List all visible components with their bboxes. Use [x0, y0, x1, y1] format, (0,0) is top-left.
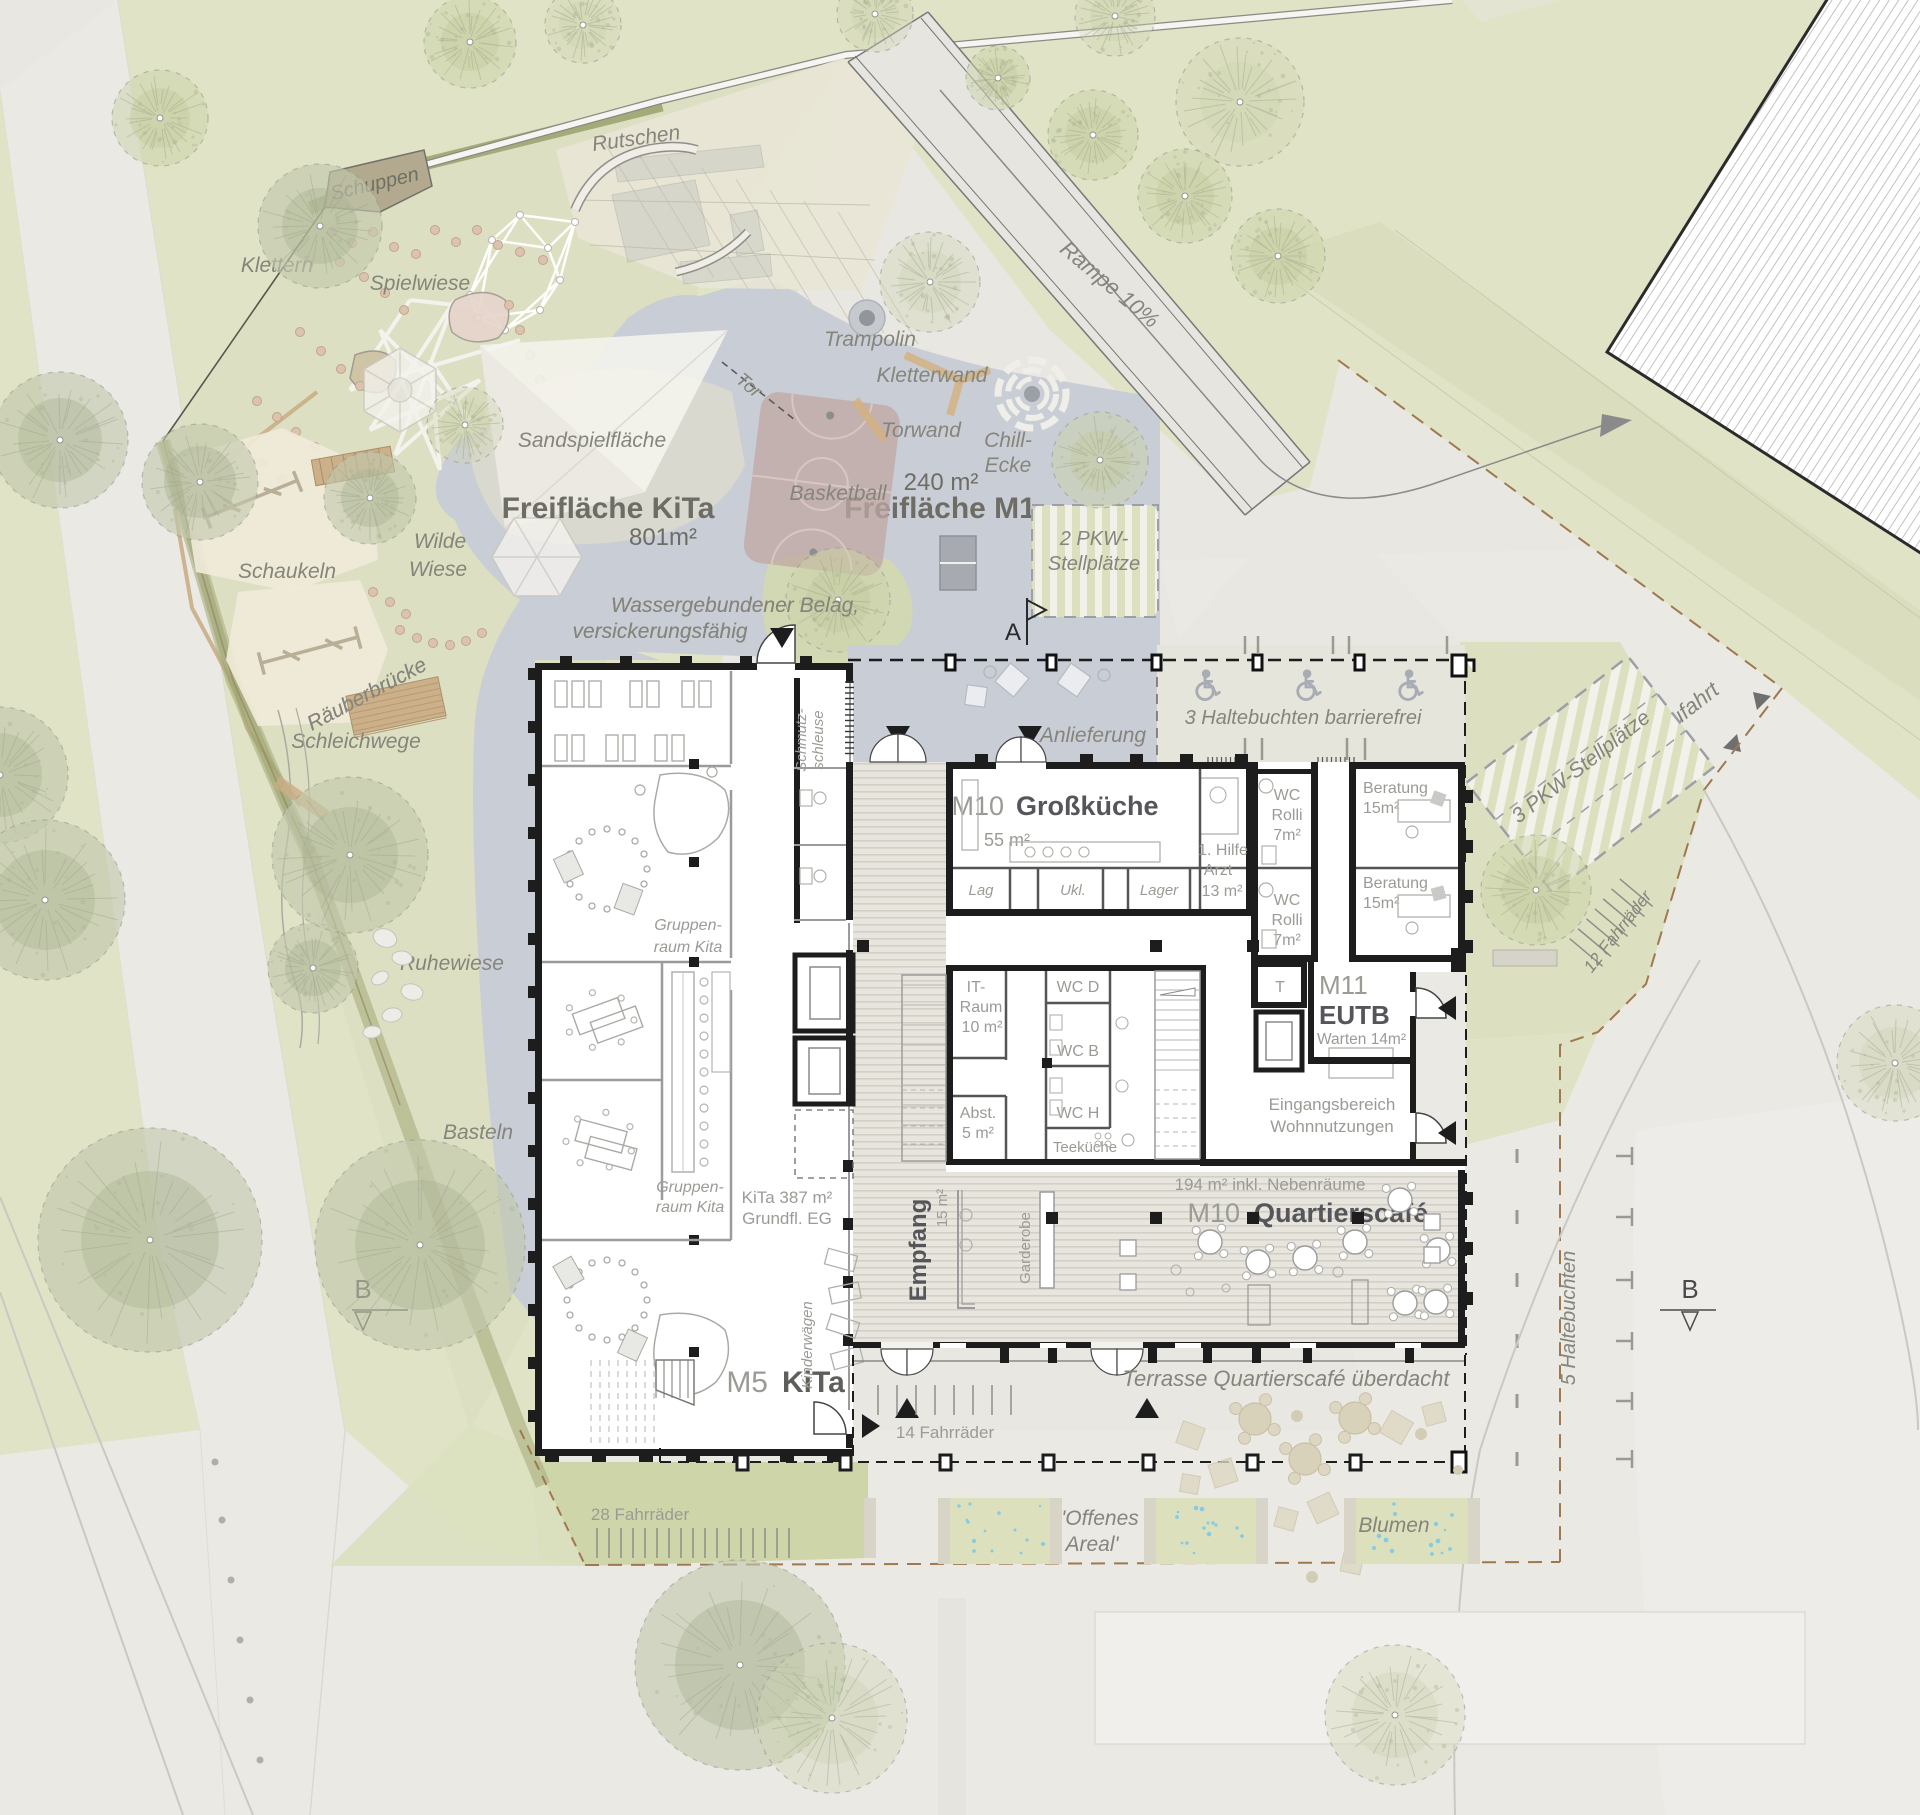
svg-text:Basketball: Basketball	[790, 482, 888, 505]
svg-text:55 m²: 55 m²	[984, 830, 1030, 850]
svg-text:15m²: 15m²	[1363, 895, 1400, 912]
svg-text:A: A	[1005, 619, 1021, 646]
svg-text:13 m²: 13 m²	[1202, 883, 1244, 900]
svg-text:15 m²: 15 m²	[934, 1189, 951, 1227]
svg-text:Spielwiese: Spielwiese	[370, 272, 470, 295]
svg-text:B: B	[1681, 1274, 1698, 1304]
svg-text:Ecke: Ecke	[985, 454, 1032, 477]
svg-text:7m²: 7m²	[1273, 932, 1301, 949]
svg-text:Eingangsbereich: Eingangsbereich	[1269, 1095, 1396, 1114]
svg-text:Garderobe: Garderobe	[1017, 1212, 1034, 1284]
svg-text:Blumen: Blumen	[1358, 1514, 1429, 1537]
svg-text:28 Fahrräder: 28 Fahrräder	[591, 1505, 690, 1524]
svg-text:Gruppen-: Gruppen-	[654, 917, 722, 934]
svg-text:Beratung: Beratung	[1363, 875, 1428, 892]
svg-text:Sandspielfläche: Sandspielfläche	[518, 429, 666, 452]
svg-text:Schaukeln: Schaukeln	[238, 560, 336, 583]
svg-text:Warten 14m²: Warten 14m²	[1317, 1031, 1406, 1048]
svg-text:Abst.: Abst.	[960, 1105, 996, 1122]
svg-text:T: T	[1275, 979, 1285, 996]
svg-text:Rolli: Rolli	[1271, 912, 1302, 929]
svg-text:2 PKW-: 2 PKW-	[1059, 528, 1129, 550]
svg-text:EUTB: EUTB	[1319, 1000, 1390, 1030]
svg-text:raum Kita: raum Kita	[656, 1199, 725, 1216]
svg-text:Kletterwand: Kletterwand	[877, 364, 989, 387]
svg-text:Grundfl. EG: Grundfl. EG	[742, 1209, 832, 1228]
svg-text:M5: M5	[726, 1366, 768, 1399]
svg-text:194 m² inkl. Nebenräume: 194 m² inkl. Nebenräume	[1175, 1175, 1366, 1194]
svg-text:schleuse: schleuse	[810, 710, 827, 769]
svg-text:Basteln: Basteln	[443, 1121, 513, 1144]
svg-text:Wohnnutzungen: Wohnnutzungen	[1270, 1117, 1394, 1136]
svg-text:Schleichwege: Schleichwege	[291, 730, 421, 753]
svg-text:5 m²: 5 m²	[962, 1125, 995, 1142]
svg-text:Schmutz-: Schmutz-	[793, 708, 810, 771]
svg-text:Torwand: Torwand	[881, 419, 962, 442]
svg-text:WC: WC	[1274, 892, 1301, 909]
svg-text:1. Hilfe: 1. Hilfe	[1198, 842, 1248, 859]
svg-text:Ruhewiese: Ruhewiese	[400, 952, 504, 975]
svg-text:Beratung: Beratung	[1363, 780, 1428, 797]
svg-text:raum Kita: raum Kita	[654, 939, 723, 956]
svg-text:3 Haltebuchten barrierefrei: 3 Haltebuchten barrierefrei	[1185, 707, 1422, 729]
svg-text:Chill-: Chill-	[984, 429, 1032, 452]
svg-text:WC B: WC B	[1057, 1043, 1099, 1060]
svg-text:5 Haltebuchten: 5 Haltebuchten	[1558, 1251, 1580, 1386]
svg-text:WC D: WC D	[1057, 979, 1100, 996]
svg-text:M11: M11	[1319, 970, 1368, 1000]
svg-text:Stellplätze: Stellplätze	[1048, 553, 1140, 575]
svg-text:Wassergebundener Belag,: Wassergebundener Belag,	[611, 594, 859, 617]
svg-text:Wiese: Wiese	[409, 558, 467, 581]
svg-text:Arzt: Arzt	[1204, 862, 1233, 879]
svg-text:Anlieferung: Anlieferung	[1038, 724, 1147, 747]
svg-text:Ukl.: Ukl.	[1060, 882, 1086, 899]
svg-text:Kinderwägen: Kinderwägen	[799, 1301, 816, 1389]
svg-text:KiTa 387 m²: KiTa 387 m²	[742, 1188, 833, 1207]
svg-text:Empfang: Empfang	[905, 1199, 932, 1302]
svg-text:'Offenes: 'Offenes	[1061, 1507, 1139, 1530]
svg-text:14 Fahrräder: 14 Fahrräder	[896, 1423, 995, 1442]
svg-text:240 m²: 240 m²	[904, 469, 979, 496]
svg-text:WC H: WC H	[1057, 1105, 1100, 1122]
svg-text:Wilde: Wilde	[414, 530, 466, 553]
svg-text:versickerungsfähig: versickerungsfähig	[572, 620, 747, 643]
svg-text:Freifläche KiTa: Freifläche KiTa	[502, 492, 715, 525]
svg-text:Lag: Lag	[968, 882, 994, 899]
svg-text:Gruppen-: Gruppen-	[656, 1179, 724, 1196]
svg-text:Terrasse Quartierscafé überdac: Terrasse Quartierscafé überdacht	[1123, 1366, 1451, 1391]
svg-text:Raum: Raum	[960, 999, 1003, 1016]
svg-text:15m²: 15m²	[1363, 800, 1400, 817]
svg-text:IT-: IT-	[967, 979, 986, 996]
svg-text:801m²: 801m²	[629, 524, 697, 551]
svg-text:7m²: 7m²	[1273, 827, 1301, 844]
svg-text:Trampolin: Trampolin	[824, 328, 916, 351]
svg-text:Rolli: Rolli	[1271, 807, 1302, 824]
svg-text:Areal': Areal'	[1063, 1533, 1119, 1556]
svg-text:Lager: Lager	[1140, 882, 1179, 899]
svg-text:10 m²: 10 m²	[962, 1019, 1004, 1036]
svg-text:Großküche: Großküche	[1016, 791, 1159, 821]
svg-text:WC: WC	[1274, 787, 1301, 804]
svg-text:M10: M10	[1187, 1198, 1240, 1228]
